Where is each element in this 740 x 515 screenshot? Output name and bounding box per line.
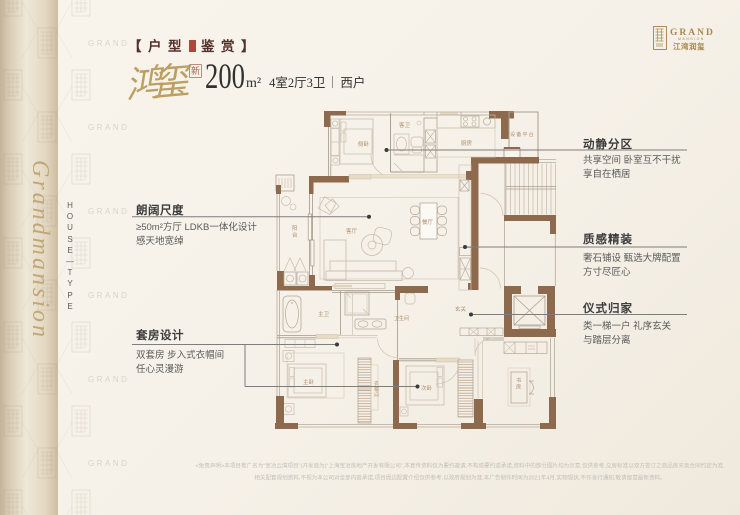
svg-text:卫生间: 卫生间 (394, 315, 409, 322)
svg-text:客厅: 客厅 (346, 227, 358, 235)
svg-text:次卧: 次卧 (421, 384, 433, 392)
svg-text:设备平台: 设备平台 (510, 130, 535, 138)
svg-text:餐厅: 餐厅 (422, 218, 434, 226)
svg-text:主卫: 主卫 (318, 310, 330, 318)
svg-text:侧卧: 侧卧 (358, 140, 370, 148)
svg-text:客卫: 客卫 (399, 121, 411, 129)
svg-text:厨房: 厨房 (461, 139, 473, 147)
svg-text:玄关: 玄关 (455, 305, 467, 313)
svg-text:阳台: 阳台 (292, 224, 298, 239)
svg-text:书房: 书房 (516, 376, 521, 390)
svg-text:主卧: 主卧 (303, 378, 315, 386)
svg-text:衣帽间: 衣帽间 (374, 380, 379, 399)
